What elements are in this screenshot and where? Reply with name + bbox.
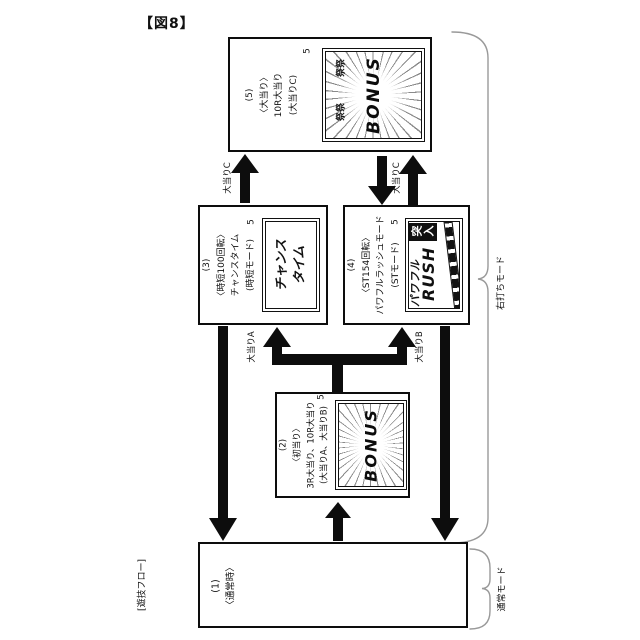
festival-decor-top: 祭祭 (334, 59, 347, 77)
ref-number-screen5: 5 (301, 48, 316, 54)
label-right-strike-mode: 右打ちモード (495, 256, 510, 310)
ref-number-screen4: 5 (389, 219, 404, 225)
box5-caption: (5) 〈大当り〉 10R大当り (大当りC) (243, 72, 301, 117)
screen-box5-display: BONUS 祭祭 祭祭 (325, 51, 422, 139)
label-jackpot-b: 大当りB (414, 331, 428, 362)
rush-content: パワフル RUSH 突入 (408, 221, 460, 309)
box5-line1: (5) (243, 72, 258, 117)
label-jackpot-c-right: 大当りC (391, 162, 405, 193)
box3-line1: (3) (200, 229, 215, 300)
ref-number-screen2: 5 (315, 394, 330, 400)
arrow-box4-to-box1 (431, 326, 459, 541)
box5-line3: 10R大当り (272, 72, 287, 117)
bonus-title-box2: BONUS (362, 408, 381, 482)
chance-time-text: チャンス タイム (273, 239, 308, 291)
label-game-flow: [遊技フロー] (136, 559, 151, 611)
festival-decor-bottom: 祭祭 (334, 103, 347, 121)
arrowhead-box2-to-box3 (263, 327, 291, 347)
box3-line3: チャンスタイム (229, 229, 244, 300)
box4-line2: 〈ST154回転〉 (359, 215, 374, 314)
box4-caption: (4) 〈ST154回転〉 パワフルラッシュモード (STモード) (345, 215, 403, 314)
t-connector-stem (332, 362, 343, 393)
box2-line3: 3R大当り、10R大当り (305, 401, 319, 488)
brace-normal-mode (470, 549, 490, 629)
box4-line1: (4) (345, 215, 360, 314)
chance-line2: タイム (291, 239, 309, 291)
patent-figure-canvas: 【図8】 BO (0, 0, 640, 640)
ref-number-screen3: 5 (245, 219, 260, 225)
label-normal-mode: 通常モード (496, 566, 511, 611)
rush-entry-badge: 突入 (409, 223, 437, 241)
box5-line4: (大当りC) (287, 72, 302, 117)
screen-box5: BONUS 祭祭 祭祭 (322, 48, 425, 142)
screen-box4-display: パワフル RUSH 突入 (408, 221, 460, 309)
arrow-box3-to-box1 (209, 326, 237, 541)
screen-box2-display: BONUS (338, 403, 404, 487)
box1-line2: 〈通常時〉 (224, 562, 239, 610)
box2-line4: (大当りA、大当りB) (319, 401, 333, 488)
filmstrip-decor (443, 221, 460, 309)
box4-line4: (STモード) (389, 215, 404, 314)
box3-line4: (時短モード) (244, 229, 259, 300)
label-jackpot-c-left: 大当りC (222, 162, 236, 193)
screen-box2: BONUS (335, 400, 407, 490)
box2-line1: (2) (277, 401, 291, 488)
box5-line2: 〈大当り〉 (257, 72, 272, 117)
box1-line1: (1) (209, 562, 224, 610)
rush-line2: RUSH (419, 247, 438, 301)
box2-caption: (2) 〈初当り〉 3R大当り、10R大当り (大当りA、大当りB) (277, 401, 332, 488)
screen-box3-display: チャンス タイム (265, 221, 317, 309)
arrow-box1-to-box2 (325, 502, 351, 541)
screen-box3: チャンス タイム (262, 218, 320, 312)
box1-caption: (1) 〈通常時〉 (209, 562, 240, 610)
chance-line1: チャンス (273, 239, 291, 291)
arrowhead-box2-to-box4 (388, 327, 416, 347)
box2-line2: 〈初当り〉 (291, 401, 305, 488)
bonus-title-box5: BONUS (364, 56, 384, 134)
box4-line3: パワフルラッシュモード (374, 215, 389, 314)
box3-line2: 〈時短100回転〉 (214, 229, 229, 300)
label-jackpot-a: 大当りA (246, 331, 260, 362)
screen-box4: パワフル RUSH 突入 (405, 218, 463, 312)
box3-caption: (3) 〈時短100回転〉 チャンスタイム (時短モード) (200, 229, 258, 300)
